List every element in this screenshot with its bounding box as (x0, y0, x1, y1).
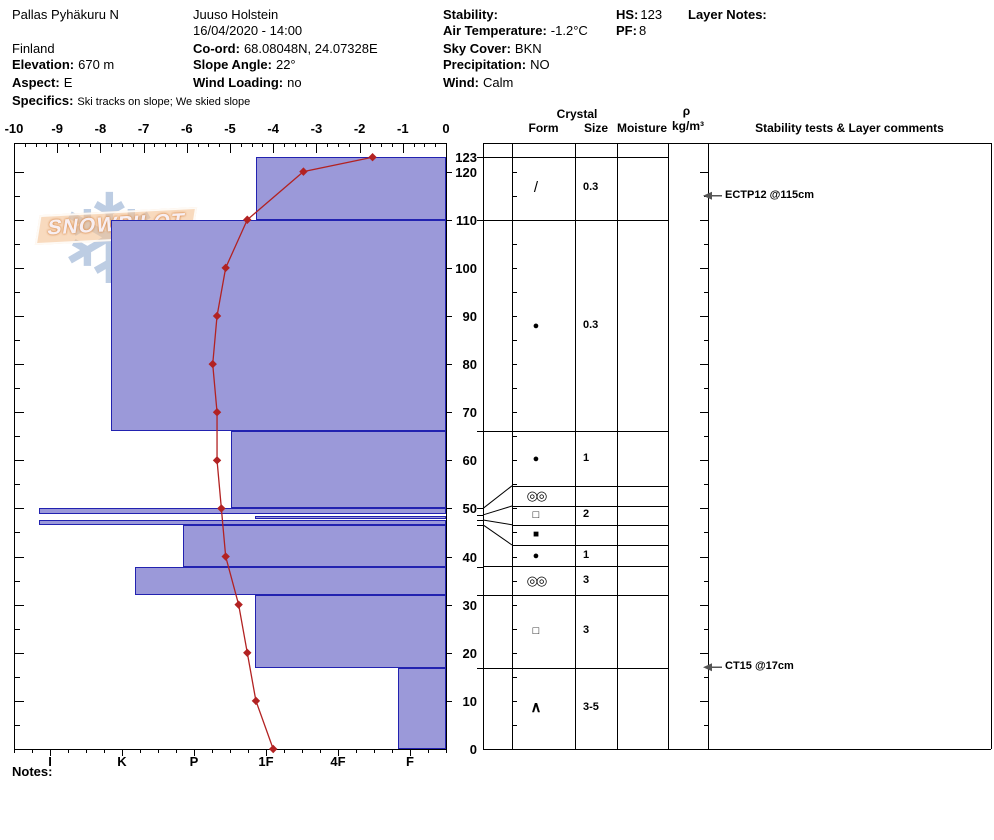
pit-datetime: 16/04/2020 - 14:00 (193, 23, 302, 38)
form-ruler-tick (513, 725, 517, 726)
hardness-axis-label: K (107, 754, 137, 769)
temp-axis-tick (144, 143, 145, 153)
temp-axis-tick (252, 143, 253, 147)
snow-layer-bar (255, 516, 446, 520)
grain-size-value: 3 (583, 624, 589, 636)
form-ruler-tick (513, 292, 517, 293)
height-axis-tick (15, 268, 24, 269)
temp-axis-tick (187, 143, 188, 153)
height-axis-tick (15, 557, 24, 558)
height-axis-tick (15, 508, 24, 509)
grain-form-symbol: □ (513, 506, 559, 524)
wind-loading-line: Wind Loading:no (193, 75, 302, 90)
stability-line: Stability: (443, 7, 502, 22)
hardness-axis-label: F (395, 754, 425, 769)
height-axis-label: 120 (441, 165, 477, 180)
temp-axis-tick (349, 143, 350, 147)
hardness-axis-tick (302, 749, 303, 753)
elevation-line: Elevation:670 m (12, 57, 114, 72)
temperature-point (234, 600, 242, 608)
height-axis-label: 110 (441, 213, 477, 228)
air-temp-value: -1.2°C (551, 23, 588, 38)
comments-ruler-tick (704, 340, 708, 341)
wind-line: Wind:Calm (443, 75, 513, 90)
height-axis-label: 100 (441, 261, 477, 276)
form-ruler-tick (513, 340, 517, 341)
height-axis-label: 90 (441, 309, 477, 324)
table-edge-tick (477, 157, 483, 158)
temp-axis-tick (306, 143, 307, 147)
temp-axis-tick (338, 143, 339, 147)
comments-ruler-tick (700, 653, 708, 654)
comments-ruler-tick (704, 677, 708, 678)
height-axis-tick (15, 316, 24, 317)
snow-layer-bar (256, 157, 446, 220)
slope-angle-line: Slope Angle:22° (193, 57, 296, 72)
temp-axis-tick (79, 143, 80, 147)
grain-size-value: 3 (583, 574, 589, 586)
thin-layer-fan-line (483, 520, 512, 525)
thin-layer-fan-line (483, 506, 512, 515)
hardness-axis-tick (284, 749, 285, 753)
sky-cover-label: Sky Cover: (443, 41, 511, 56)
hardness-axis-tick (176, 749, 177, 753)
temp-axis-label: -5 (215, 121, 245, 136)
height-axis-label: 123 (441, 150, 477, 165)
height-axis-tick (15, 388, 20, 389)
coord-line: Co-ord:68.08048N, 24.07328E (193, 41, 378, 56)
height-axis-label: 50 (441, 501, 477, 516)
precipitation-label: Precipitation: (443, 57, 526, 72)
table-vline (575, 143, 576, 749)
form-ruler-tick (513, 484, 517, 485)
form-ruler-tick (513, 388, 517, 389)
table-vline (512, 143, 513, 749)
comments-ruler-tick (704, 484, 708, 485)
grain-form-symbol: ● (513, 450, 559, 468)
stability-label: Stability: (443, 7, 498, 22)
sky-cover-value: BKN (515, 41, 542, 56)
form-ruler-tick (513, 268, 517, 269)
stability-test-annotation: CT15 @17cm (725, 660, 794, 672)
temp-axis-label: -10 (0, 121, 29, 136)
comments-ruler-tick (704, 532, 708, 533)
height-axis-tick (15, 412, 24, 413)
coord-value: 68.08048N, 24.07328E (244, 41, 378, 56)
table-row-line (483, 668, 668, 669)
height-axis-label: 10 (441, 694, 477, 709)
height-axis-tick (15, 653, 24, 654)
temp-axis-label: -4 (258, 121, 288, 136)
temp-axis-tick (241, 143, 242, 147)
snow-layer-bar (255, 595, 446, 668)
temp-axis-label: -2 (345, 121, 375, 136)
grain-form-symbol: ◎◎ (513, 572, 559, 590)
table-surface-line (483, 157, 668, 158)
temp-axis-label: -8 (85, 121, 115, 136)
grain-form-symbol: / (513, 179, 559, 197)
form-ruler-tick (513, 436, 517, 437)
thin-layer-fan-line (483, 486, 512, 509)
temp-axis-tick (36, 143, 37, 147)
temp-axis-tick (154, 143, 155, 147)
aspect-value: E (64, 75, 73, 90)
temp-axis-tick (360, 143, 361, 153)
form-ruler-tick (513, 172, 517, 173)
grain-form-symbol: □ (513, 622, 559, 640)
hardness-axis-label: I (35, 754, 65, 769)
snow-layer-bar (135, 567, 446, 595)
height-axis-label: 70 (441, 405, 477, 420)
col-header-density-unit: kg/m³ (666, 119, 710, 133)
snowpilot-profile-page: Pallas Pyhäkuru N Finland Elevation:670 … (0, 0, 994, 840)
table-edge-tick (477, 520, 483, 521)
comments-ruler-tick (700, 701, 708, 702)
temp-axis-tick (100, 143, 101, 153)
temp-axis-tick (133, 143, 134, 147)
table-vline (991, 143, 992, 749)
temp-axis-tick (208, 143, 209, 147)
grain-form-symbol: ∧ (513, 699, 559, 717)
comments-ruler-tick (700, 412, 708, 413)
thin-layer-fan-line (483, 525, 512, 545)
snow-layer-bar (231, 431, 446, 508)
table-edge-tick (477, 508, 483, 509)
hardness-axis-tick (68, 749, 69, 753)
precipitation-value: NO (530, 57, 550, 72)
height-axis-label: 0 (441, 742, 477, 757)
col-header-moisture: Moisture (614, 121, 670, 135)
table-vline (668, 143, 669, 749)
table-vline (617, 143, 618, 749)
table-edge-tick (477, 431, 483, 432)
table-row-line (483, 220, 668, 221)
aspect-line: Aspect:E (12, 75, 72, 90)
elevation-value: 670 m (78, 57, 114, 72)
comments-ruler-tick (700, 316, 708, 317)
temp-axis-tick (327, 143, 328, 147)
comments-ruler-tick (704, 581, 708, 582)
air-temp-label: Air Temperature: (443, 23, 547, 38)
temp-axis-label: -1 (388, 121, 418, 136)
comments-ruler-tick (704, 244, 708, 245)
comments-ruler-tick (700, 364, 708, 365)
wind-value: Calm (483, 75, 513, 90)
grain-size-value: 3-5 (583, 701, 599, 713)
hardness-axis-tick (374, 749, 375, 753)
form-ruler-tick (513, 677, 517, 678)
table-top-line (483, 143, 991, 144)
temp-axis-tick (370, 143, 371, 147)
temp-axis-tick (25, 143, 26, 147)
slope-angle-label: Slope Angle: (193, 57, 272, 72)
comments-ruler-tick (700, 508, 708, 509)
col-header-density-symbol: ρ (668, 104, 705, 118)
temp-axis-tick (57, 143, 58, 153)
temp-axis-tick (90, 143, 91, 147)
grain-size-value: 2 (583, 508, 589, 520)
hardness-axis-tick (86, 749, 87, 753)
temp-axis-tick (230, 143, 231, 153)
snow-layer-bar (111, 220, 446, 432)
elevation-label: Elevation: (12, 57, 74, 72)
table-edge-tick (477, 595, 483, 596)
hardness-axis-tick (428, 749, 429, 753)
height-axis-tick (15, 460, 24, 461)
temp-axis-tick (68, 143, 69, 147)
coord-label: Co-ord: (193, 41, 240, 56)
comments-ruler-tick (704, 292, 708, 293)
table-edge-tick (477, 567, 483, 568)
slope-angle-value: 22° (276, 57, 296, 72)
temp-axis-tick (284, 143, 285, 147)
specifics-value: Ski tracks on slope; We skied slope (77, 96, 250, 108)
hardness-axis-tick (248, 749, 249, 753)
temp-axis-label: -3 (301, 121, 331, 136)
temp-axis-tick (414, 143, 415, 147)
precipitation-line: Precipitation:NO (443, 57, 550, 72)
grain-form-symbol: ● (513, 547, 559, 565)
grain-size-value: 0.3 (583, 319, 598, 331)
temp-axis-tick (316, 143, 317, 153)
temp-axis-tick (435, 143, 436, 147)
stability-test-annotation: ECTP12 @115cm (725, 189, 814, 201)
form-ruler-tick (513, 244, 517, 245)
col-header-comments: Stability tests & Layer comments (708, 121, 991, 135)
comments-ruler-tick (704, 436, 708, 437)
temp-axis-tick (165, 143, 166, 147)
comments-ruler-tick (700, 172, 708, 173)
hardness-axis-tick (140, 749, 141, 753)
height-axis-tick (15, 196, 20, 197)
table-edge-tick (477, 668, 483, 669)
comments-ruler-tick (700, 557, 708, 558)
temp-axis-tick (295, 143, 296, 147)
grain-form-symbol: ■ (513, 526, 559, 544)
hardness-axis-label: 4F (323, 754, 353, 769)
temp-axis-tick (392, 143, 393, 147)
temperature-point (243, 649, 251, 657)
comments-ruler-tick (704, 725, 708, 726)
hardness-axis-tick (32, 749, 33, 753)
height-axis-tick (15, 436, 20, 437)
hardness-axis-tick (14, 749, 15, 753)
temp-axis-label: -6 (172, 121, 202, 136)
hardness-axis-tick (212, 749, 213, 753)
table-row-line (483, 566, 668, 567)
height-axis-tick (15, 677, 20, 678)
height-axis-tick (15, 220, 24, 221)
temp-axis-tick (111, 143, 112, 147)
height-axis-tick (15, 701, 24, 702)
comments-ruler-tick (700, 268, 708, 269)
country: Finland (12, 41, 55, 56)
wind-label: Wind: (443, 75, 479, 90)
air-temp-line: Air Temperature:-1.2°C (443, 23, 588, 38)
hardness-axis-label: P (179, 754, 209, 769)
col-header-crystal: Crystal (540, 107, 614, 121)
snow-layer-bar (39, 508, 446, 514)
table-edge-tick (477, 220, 483, 221)
pf-value: 8 (639, 23, 646, 38)
comments-ruler-tick (700, 220, 708, 221)
hardness-axis-tick (230, 749, 231, 753)
height-axis-label: 20 (441, 646, 477, 661)
temp-axis-tick (176, 143, 177, 147)
hardness-axis-label: 1F (251, 754, 281, 769)
temp-axis-tick (122, 143, 123, 147)
wind-loading-value: no (287, 75, 301, 90)
aspect-label: Aspect: (12, 75, 60, 90)
specifics-label: Specifics: (12, 93, 73, 108)
grain-form-symbol: ◎◎ (513, 487, 559, 505)
table-edge-tick (477, 515, 483, 516)
comments-ruler-tick (704, 388, 708, 389)
table-vline (483, 143, 484, 749)
temp-axis-tick (262, 143, 263, 147)
form-ruler-tick (513, 653, 517, 654)
table-edge-tick (477, 525, 483, 526)
temp-axis-tick (219, 143, 220, 147)
height-axis-label: 40 (441, 550, 477, 565)
height-axis-tick (15, 725, 20, 726)
grain-size-value: 1 (583, 452, 589, 464)
col-header-size: Size (575, 121, 617, 135)
sky-cover-line: Sky Cover:BKN (443, 41, 542, 56)
col-header-form: Form (512, 121, 575, 135)
temp-axis-label: 0 (431, 121, 461, 136)
grain-size-value: 0.3 (583, 181, 598, 193)
height-axis-label: 80 (441, 357, 477, 372)
hs-line: HS:123 (616, 7, 662, 22)
height-axis-tick (15, 340, 20, 341)
height-axis-label: 60 (441, 453, 477, 468)
comments-ruler-tick (700, 460, 708, 461)
height-axis-tick (15, 292, 20, 293)
specifics-line: Specifics:Ski tracks on slope; We skied … (12, 93, 250, 108)
form-ruler-tick (513, 220, 517, 221)
height-axis-tick (15, 244, 20, 245)
temp-axis-tick (424, 143, 425, 147)
form-ruler-tick (513, 605, 517, 606)
wind-loading-label: Wind Loading: (193, 75, 283, 90)
temp-axis-tick (381, 143, 382, 147)
hardness-axis-tick (320, 749, 321, 753)
grain-size-value: 1 (583, 549, 589, 561)
hs-value: 123 (640, 7, 662, 22)
temp-axis-tick (198, 143, 199, 147)
table-row-line (483, 431, 668, 432)
comments-ruler-tick (700, 605, 708, 606)
pf-label: PF: (616, 23, 637, 38)
hs-label: HS: (616, 7, 638, 22)
snow-layer-bar (183, 525, 446, 567)
height-axis-tick (15, 581, 20, 582)
pf-line: PF:8 (616, 23, 646, 38)
height-axis-label: 30 (441, 598, 477, 613)
temp-axis-tick (403, 143, 404, 153)
temp-axis-label: -9 (42, 121, 72, 136)
grain-form-symbol: ● (513, 317, 559, 335)
form-ruler-tick (513, 364, 517, 365)
site-name: Pallas Pyhäkuru N (12, 7, 119, 22)
comments-ruler-tick (704, 196, 708, 197)
snow-layer-bar (398, 668, 446, 749)
temperature-point (252, 697, 260, 705)
hardness-axis-tick (104, 749, 105, 753)
hardness-axis-tick (356, 749, 357, 753)
table-vline (708, 143, 709, 749)
table-row-line (483, 595, 668, 596)
comments-ruler-tick (704, 629, 708, 630)
hardness-axis-tick (392, 749, 393, 753)
temp-axis-tick (273, 143, 274, 153)
height-axis-tick (15, 605, 24, 606)
height-axis-tick (15, 629, 20, 630)
temperature-point (213, 456, 221, 464)
height-axis-tick (15, 364, 24, 365)
height-axis-tick (15, 484, 20, 485)
temp-axis-label: -7 (129, 121, 159, 136)
observer-name: Juuso Holstein (193, 7, 278, 22)
form-ruler-tick (513, 412, 517, 413)
temp-axis-tick (46, 143, 47, 147)
temperature-point (269, 745, 277, 753)
temp-axis-tick (14, 143, 15, 153)
table-bottom-line (483, 749, 991, 750)
height-axis-tick (15, 172, 24, 173)
hardness-axis-tick (158, 749, 159, 753)
height-axis-tick (15, 532, 20, 533)
layer-notes-label: Layer Notes: (688, 7, 767, 22)
